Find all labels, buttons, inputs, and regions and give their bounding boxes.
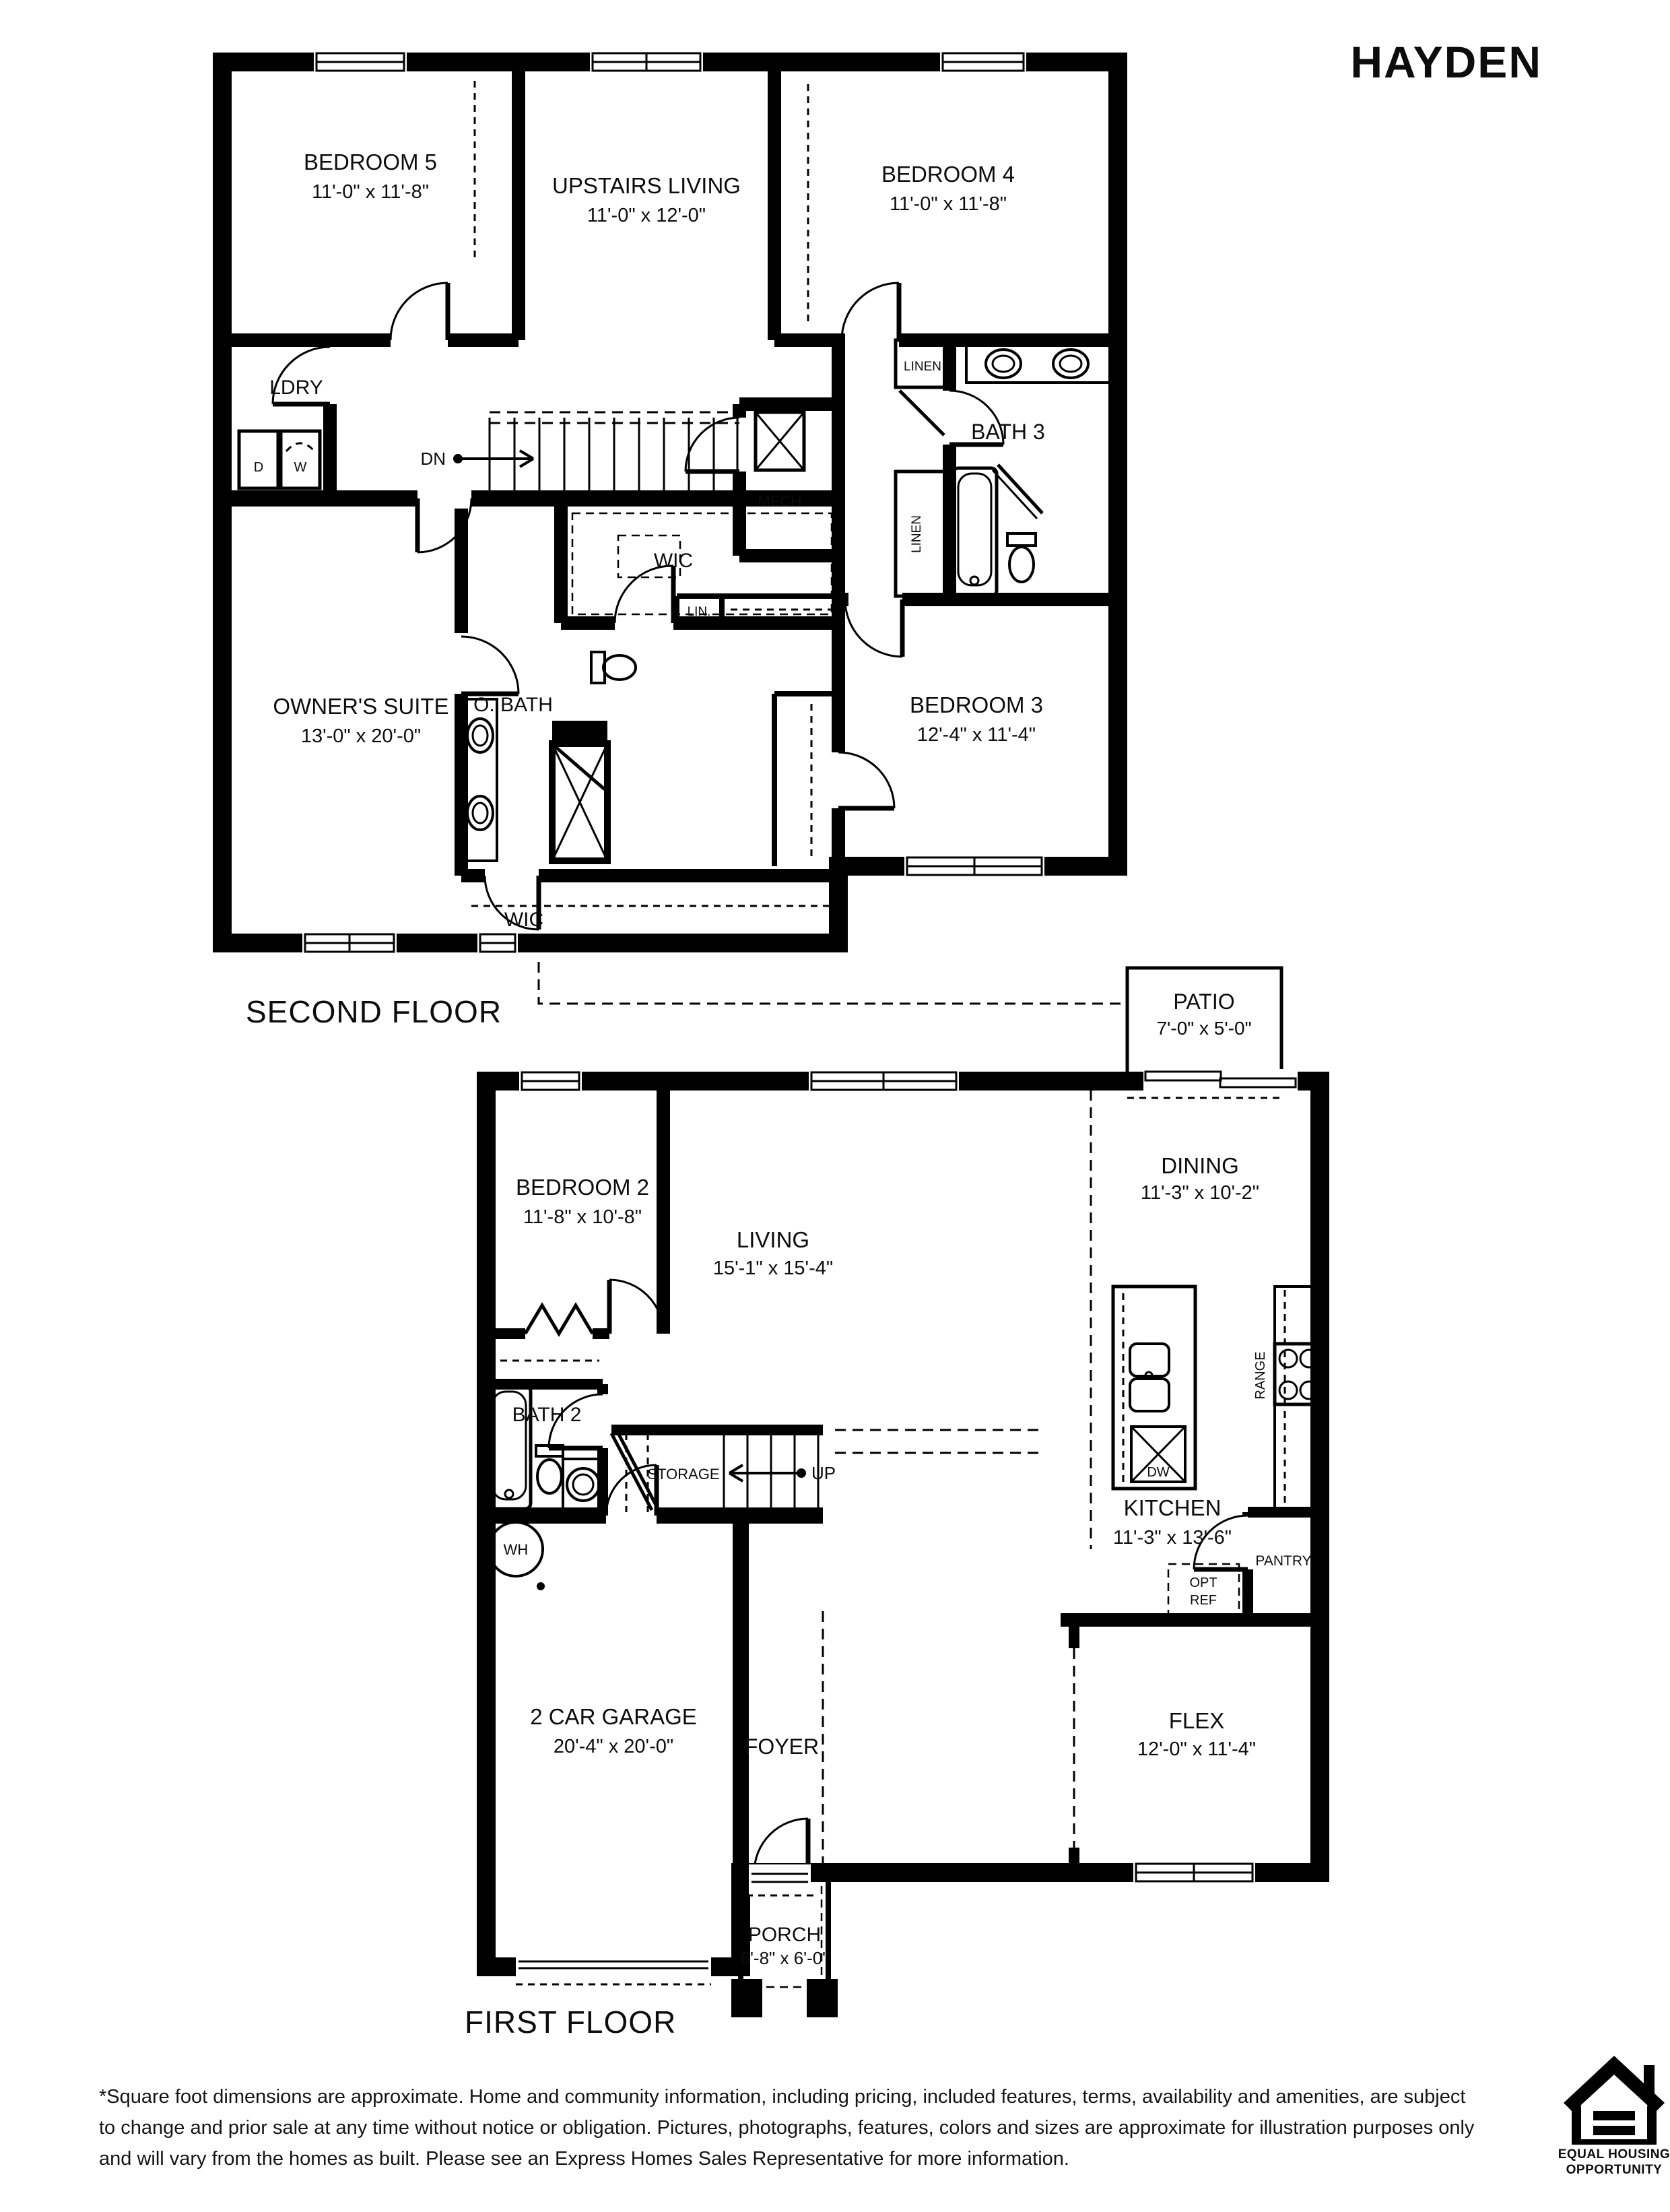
flex-dims: 12'-0" x 11'-4" xyxy=(1137,1738,1256,1760)
obath-sink-top xyxy=(467,719,493,752)
eho-text-1: EQUAL HOUSING xyxy=(1558,2147,1670,2161)
second-floor-doors xyxy=(273,283,1003,930)
dining-dims: 11'-3" x 10'-2" xyxy=(1141,1182,1259,1204)
bedroom5-label: BEDROOM 5 xyxy=(304,150,437,174)
up-arrow xyxy=(729,1465,801,1481)
owners-suite-label: OWNER'S SUITE xyxy=(273,694,448,719)
dryer-label: D xyxy=(254,460,263,475)
porch-post-left xyxy=(731,1979,762,2017)
patio-label: PATIO xyxy=(1173,989,1234,1014)
washer-label: W xyxy=(294,460,307,475)
second-floor-title: SECOND FLOOR xyxy=(246,994,502,1029)
bedroom2-closet-bifold xyxy=(525,1305,593,1334)
opt-ref-label-1: OPT xyxy=(1189,1575,1217,1590)
bath3-toilet xyxy=(1007,533,1036,546)
opt-ref-label-2: REF xyxy=(1190,1593,1217,1608)
plan-title: HAYDEN xyxy=(1350,37,1542,87)
floor-connector-dashes xyxy=(539,962,1127,1004)
kitchen-sink-bottom xyxy=(1130,1379,1169,1411)
first-floor-windows xyxy=(516,1068,1298,1984)
equal-housing-logo: EQUAL HOUSING OPPORTUNITY xyxy=(1558,2056,1670,2177)
bedroom4-label: BEDROOM 4 xyxy=(881,162,1015,187)
laundry-label: LDRY xyxy=(269,377,323,399)
garage-dims: 20'-4" x 20'-0" xyxy=(554,1736,673,1757)
porch-post-right xyxy=(807,1979,838,2017)
porch-dims: 6'-8" x 6'-0" xyxy=(741,1948,829,1968)
eho-equals-top xyxy=(1593,2111,1635,2120)
range-label: RANGE xyxy=(1253,1351,1268,1399)
disclaimer-line-2: to change and prior sale at any time wit… xyxy=(99,2117,1475,2139)
disclaimer: *Square foot dimensions are approximate.… xyxy=(99,2086,1475,2170)
kitchen-dims: 11'-3" x 13'-6" xyxy=(1113,1527,1232,1549)
bath2-label: BATH 2 xyxy=(512,1404,582,1426)
dn-arrow xyxy=(458,451,533,467)
eho-text-2: OPPORTUNITY xyxy=(1566,2163,1663,2177)
first-floor-plan: PATIO 7'-0" x 5'-0" BEDROOM 2 11'-8" x 1… xyxy=(465,968,1320,2040)
kitchen-label: KITCHEN xyxy=(1124,1495,1222,1520)
living-dims: 15'-1" x 15'-4" xyxy=(713,1258,833,1279)
obath-vanity xyxy=(463,699,497,861)
bath3-label: BATH 3 xyxy=(971,420,1045,444)
linen-top-label: LINEN xyxy=(904,360,941,374)
floor-plan-drawing: BEDROOM 5 11'-0" x 11'-8" UPSTAIRS LIVIN… xyxy=(0,0,1670,2212)
dw-label: DW xyxy=(1147,1465,1169,1480)
living-label: LIVING xyxy=(737,1227,809,1252)
pantry-label: PANTRY xyxy=(1255,1553,1311,1569)
wic-owner-label: WIC xyxy=(504,909,543,931)
disclaimer-line-1: *Square foot dimensions are approximate.… xyxy=(99,2086,1465,2108)
owners-suite-dims: 13'-0" x 20'-0" xyxy=(301,725,421,747)
bedroom5-dims: 11'-0" x 11'-8" xyxy=(312,181,429,203)
porch-label: PORCH xyxy=(748,1924,821,1946)
lin-label: LIN. xyxy=(688,605,711,619)
bath3-sink-right xyxy=(1053,350,1088,378)
dining-label: DINING xyxy=(1161,1153,1239,1178)
disclaimer-line-3: and will vary from the homes as built. P… xyxy=(99,2148,1069,2170)
garage-label: 2 CAR GARAGE xyxy=(530,1704,697,1729)
upstairs-living-dims: 11'-0" x 12'-0" xyxy=(587,205,706,226)
up-label: UP xyxy=(811,1463,836,1483)
bath3-sink-left xyxy=(986,350,1021,378)
obath-label: O. BATH xyxy=(473,694,553,716)
floor-plan-page: BEDROOM 5 11'-0" x 11'-8" UPSTAIRS LIVIN… xyxy=(0,0,1670,2212)
flex-label: FLEX xyxy=(1169,1708,1225,1733)
bedroom4-dims: 11'-0" x 11'-8" xyxy=(890,193,1007,215)
second-floor-plan: BEDROOM 5 11'-0" x 11'-8" UPSTAIRS LIVIN… xyxy=(222,48,1127,1029)
bedroom3-label: BEDROOM 3 xyxy=(910,692,1043,717)
obath-sink-bottom xyxy=(467,796,493,830)
second-floor-stairs xyxy=(453,418,737,497)
bedroom2-label: BEDROOM 2 xyxy=(516,1175,649,1200)
wh-label: WH xyxy=(504,1541,529,1558)
linen-side-label: LINEN xyxy=(910,515,924,553)
foyer-label: FOYER xyxy=(745,1734,819,1759)
dn-label: DN xyxy=(420,449,446,469)
storage-label: STORAGE xyxy=(647,1466,719,1483)
wic-hall-label: WIC xyxy=(654,550,693,572)
patio-dims: 7'-0" x 5'-0" xyxy=(1156,1018,1251,1039)
first-floor-title: FIRST FLOOR xyxy=(465,2005,676,2040)
first-floor-doors xyxy=(525,1280,1248,1873)
eho-equals-bottom xyxy=(1593,2126,1635,2135)
bedroom2-dims: 11'-8" x 10'-8" xyxy=(523,1206,642,1228)
upstairs-living-label: UPSTAIRS LIVING xyxy=(552,173,741,198)
mech-label: MECH xyxy=(758,493,802,510)
bedroom3-dims: 12'-4" x 11'-4" xyxy=(917,724,1036,746)
